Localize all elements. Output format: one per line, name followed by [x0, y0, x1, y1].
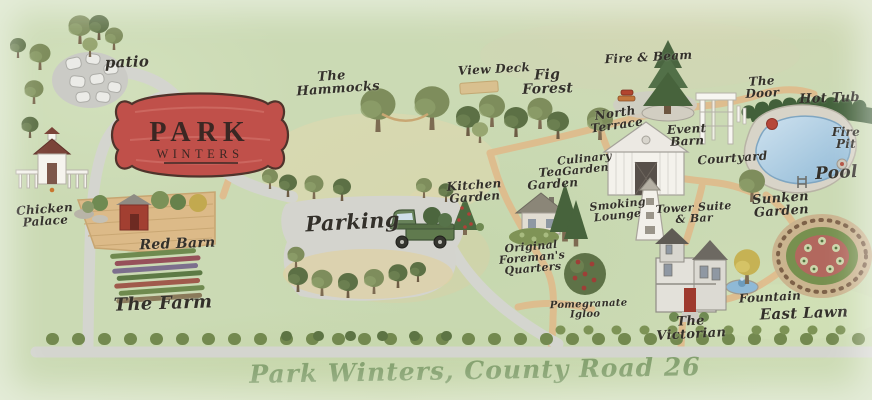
label-pool: Pool: [809, 164, 865, 184]
label-fire-pit: Fire Pit: [829, 126, 863, 150]
label-hot-tub: Hot Tub: [797, 91, 862, 107]
label-parking: Parking: [305, 209, 401, 235]
sunken-garden-circle: [772, 214, 872, 298]
hot-tub-icon: [767, 119, 778, 130]
label-fountain: Fountain: [737, 289, 804, 305]
sign-line2: WINTERS: [156, 147, 243, 161]
label-east-lawn: East Lawn: [758, 304, 850, 322]
park-winters-sign: PARK WINTERS: [112, 94, 288, 177]
label-the-hammocks: The Hammocks: [295, 68, 369, 99]
park-winters-map: PARK WINTERS patio The Hammocks View Dec…: [0, 0, 872, 400]
label-smoking-lounge: Smoking Lounge: [589, 196, 645, 224]
victorian-house: [655, 228, 728, 322]
label-event-barn: Event Barn: [662, 122, 711, 149]
label-the-victorian: The Victorian: [649, 313, 732, 344]
label-pomegranate-igloo: Pomegranate Igloo: [550, 299, 621, 322]
view-deck-platform: [460, 81, 499, 95]
label-the-farm: The Farm: [113, 293, 214, 315]
label-tower-suite-bar: Tower Suite & Bar: [655, 200, 732, 226]
sign-line1: PARK: [149, 117, 250, 148]
label-red-barn: Red Barn: [135, 236, 220, 253]
pomegranate-bush: [564, 253, 606, 295]
label-patio: patio: [97, 54, 157, 71]
chicken-palace-building: [16, 127, 88, 192]
label-foremans-quarters: Original Foreman's Quarters: [495, 238, 570, 278]
label-sunken-garden: Sunken Garden: [749, 190, 813, 221]
label-tea-garden: Tea Garden: [526, 164, 576, 192]
label-fig-forest: Fig Forest: [520, 67, 576, 97]
pool-fence-icon: [737, 106, 746, 124]
label-chicken-palace: Chicken Palace: [11, 201, 79, 230]
label-the-door: The Door: [740, 74, 783, 101]
